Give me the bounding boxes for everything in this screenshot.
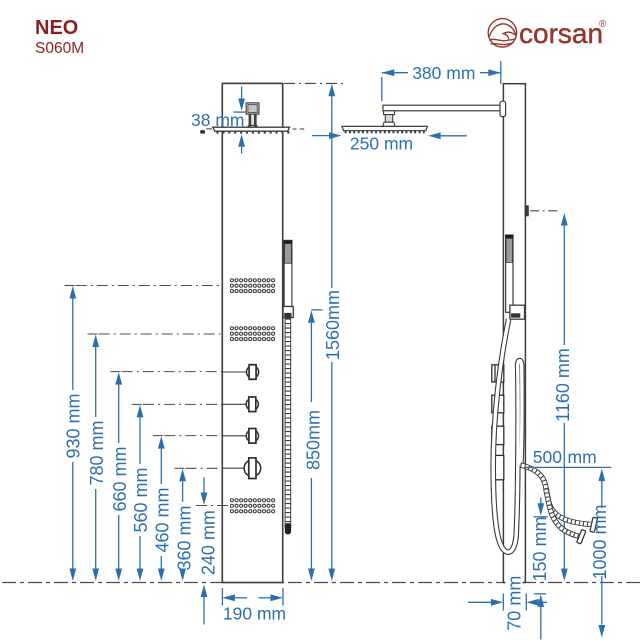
svg-text:460 mm: 460 mm bbox=[153, 487, 173, 552]
svg-text:380 mm: 380 mm bbox=[412, 63, 475, 83]
svg-text:S060M: S060M bbox=[35, 40, 84, 57]
svg-text:1000 mm: 1000 mm bbox=[590, 504, 610, 579]
svg-text:mm: mm bbox=[568, 447, 597, 467]
svg-text:38 mm: 38 mm bbox=[191, 110, 244, 130]
svg-text:1560mm: 1560mm bbox=[323, 290, 343, 360]
svg-text:1160 mm: 1160 mm bbox=[553, 348, 573, 422]
svg-text:780 mm: 780 mm bbox=[87, 420, 107, 485]
svg-text:corsan: corsan bbox=[519, 18, 603, 49]
svg-text:190 mm: 190 mm bbox=[223, 604, 286, 624]
svg-text:930 mm: 930 mm bbox=[64, 393, 84, 458]
svg-text:500: 500 bbox=[533, 447, 562, 467]
svg-text:850mm: 850mm bbox=[303, 410, 323, 470]
svg-text:360 mm: 360 mm bbox=[175, 505, 195, 570]
svg-text:NEO: NEO bbox=[35, 17, 78, 39]
svg-text:560 mm: 560 mm bbox=[131, 467, 151, 532]
svg-text:70 mm: 70 mm bbox=[504, 576, 524, 631]
svg-text:250 mm: 250 mm bbox=[350, 134, 413, 154]
svg-text:240 mm: 240 mm bbox=[199, 510, 219, 575]
svg-text:150 mm: 150 mm bbox=[530, 516, 550, 581]
svg-text:®: ® bbox=[599, 19, 607, 30]
svg-text:660 mm: 660 mm bbox=[110, 446, 130, 511]
